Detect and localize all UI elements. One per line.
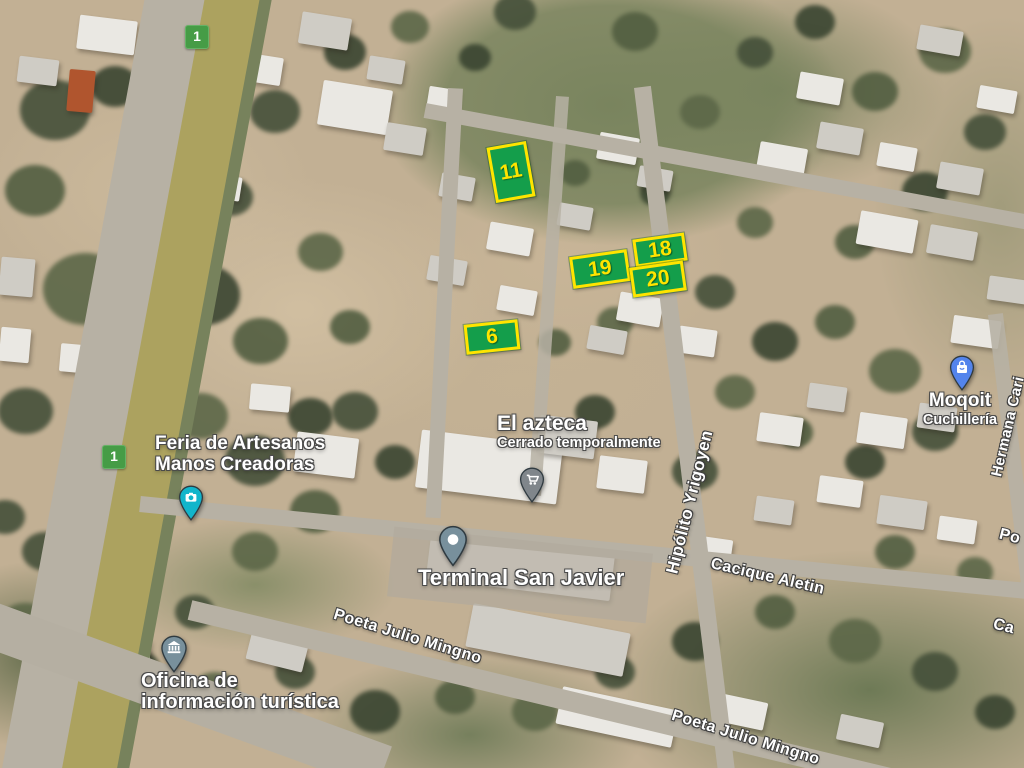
- lot-number: 18: [647, 236, 673, 263]
- shopping-cart-pin-icon: [519, 467, 545, 503]
- lot-number: 19: [587, 255, 613, 282]
- roof: [66, 69, 96, 113]
- tree: [752, 322, 798, 361]
- tree: [332, 392, 378, 431]
- camera-pin-icon: [178, 485, 204, 521]
- poi-category: Cuchillería: [900, 411, 1020, 430]
- tree: [459, 44, 491, 71]
- tourist-office-pin-icon: [160, 635, 188, 673]
- poi-name: Moqoit: [900, 390, 1020, 411]
- roof: [816, 475, 863, 508]
- tree: [852, 72, 898, 111]
- tree: [737, 207, 773, 238]
- pin-body: [180, 486, 203, 520]
- roof: [0, 327, 31, 363]
- tree: [737, 37, 773, 68]
- tree: [298, 233, 343, 271]
- tree: [233, 318, 288, 365]
- tree: [232, 532, 278, 571]
- tree: [5, 165, 65, 216]
- poi-name-line2: Manos Creadoras: [155, 454, 325, 475]
- roof: [366, 55, 405, 84]
- roof: [383, 122, 427, 156]
- pin-body: [521, 468, 544, 502]
- roof: [876, 495, 928, 530]
- tree: [975, 695, 1015, 729]
- oficina-turismo-label[interactable]: Oficina de información turística: [141, 671, 339, 713]
- tree: [845, 445, 885, 479]
- poi-name: El azteca: [497, 413, 661, 434]
- roof: [756, 412, 804, 447]
- moqoit-label[interactable]: Moqoit Cuchillería: [900, 390, 1020, 430]
- roof: [937, 515, 978, 544]
- roof: [816, 121, 864, 155]
- feria-artesanos-label[interactable]: Feria de Artesanos Manos Creadoras: [155, 433, 325, 475]
- roof: [76, 15, 138, 56]
- tree: [0, 500, 25, 534]
- roof: [796, 71, 844, 105]
- poi-name: Oficina de: [141, 671, 339, 692]
- tree: [494, 0, 536, 30]
- generic-dot-pin-icon: [438, 525, 468, 567]
- poi-name-line2: información turística: [141, 692, 339, 713]
- roof: [586, 325, 628, 355]
- tree: [375, 445, 415, 479]
- feria-artesanos-pin[interactable]: [178, 485, 204, 526]
- tree: [755, 595, 795, 629]
- lot-marker-6[interactable]: 6: [464, 319, 521, 354]
- roof: [249, 383, 291, 412]
- map-canvas[interactable]: 1 1 11 18 19 20 6 Poeta Julio Mingno Cac…: [0, 0, 1024, 768]
- roof: [496, 285, 538, 316]
- tree: [829, 619, 881, 663]
- tree: [875, 535, 915, 569]
- tree: [391, 11, 429, 43]
- poi-status: Cerrado temporalmente: [497, 434, 661, 453]
- tree: [288, 398, 333, 436]
- satellite-imagery: [0, 0, 1024, 768]
- el-azteca-label[interactable]: El azteca Cerrado temporalmente: [497, 413, 661, 453]
- tree: [869, 349, 921, 393]
- roof: [753, 495, 794, 525]
- shopping-bag-pin-icon: [949, 355, 975, 391]
- roof: [976, 85, 1017, 114]
- terminal-san-javier-label[interactable]: Terminal San Javier: [418, 567, 624, 588]
- tree: [250, 90, 300, 133]
- roof: [596, 455, 648, 494]
- tree: [350, 690, 400, 733]
- poi-name: Terminal San Javier: [418, 567, 624, 588]
- roof: [486, 221, 534, 256]
- roof: [806, 382, 847, 412]
- tree: [964, 114, 1006, 150]
- lot-number: 6: [485, 324, 499, 349]
- tree: [330, 310, 370, 344]
- tree: [0, 388, 53, 435]
- route-shield-1-mid: 1: [102, 445, 126, 469]
- tree: [695, 275, 735, 309]
- tree: [560, 160, 590, 186]
- pin-body: [440, 527, 466, 566]
- roof: [836, 714, 884, 749]
- el-azteca-pin[interactable]: [519, 467, 545, 508]
- tree: [715, 375, 755, 409]
- route-shield-1-top: 1: [185, 25, 209, 49]
- tree: [680, 95, 720, 129]
- lot-number: 11: [498, 158, 524, 185]
- roof: [556, 202, 593, 231]
- roof: [0, 257, 36, 298]
- roof: [298, 11, 352, 50]
- roof: [317, 80, 393, 135]
- roof: [926, 224, 978, 261]
- roof: [987, 275, 1024, 304]
- tree: [612, 12, 658, 51]
- roof: [17, 56, 60, 87]
- tree: [912, 652, 958, 691]
- tree: [795, 5, 835, 39]
- lot-number: 20: [645, 265, 671, 292]
- poi-name: Feria de Artesanos: [155, 433, 325, 454]
- roof: [876, 142, 918, 172]
- tree: [815, 305, 855, 339]
